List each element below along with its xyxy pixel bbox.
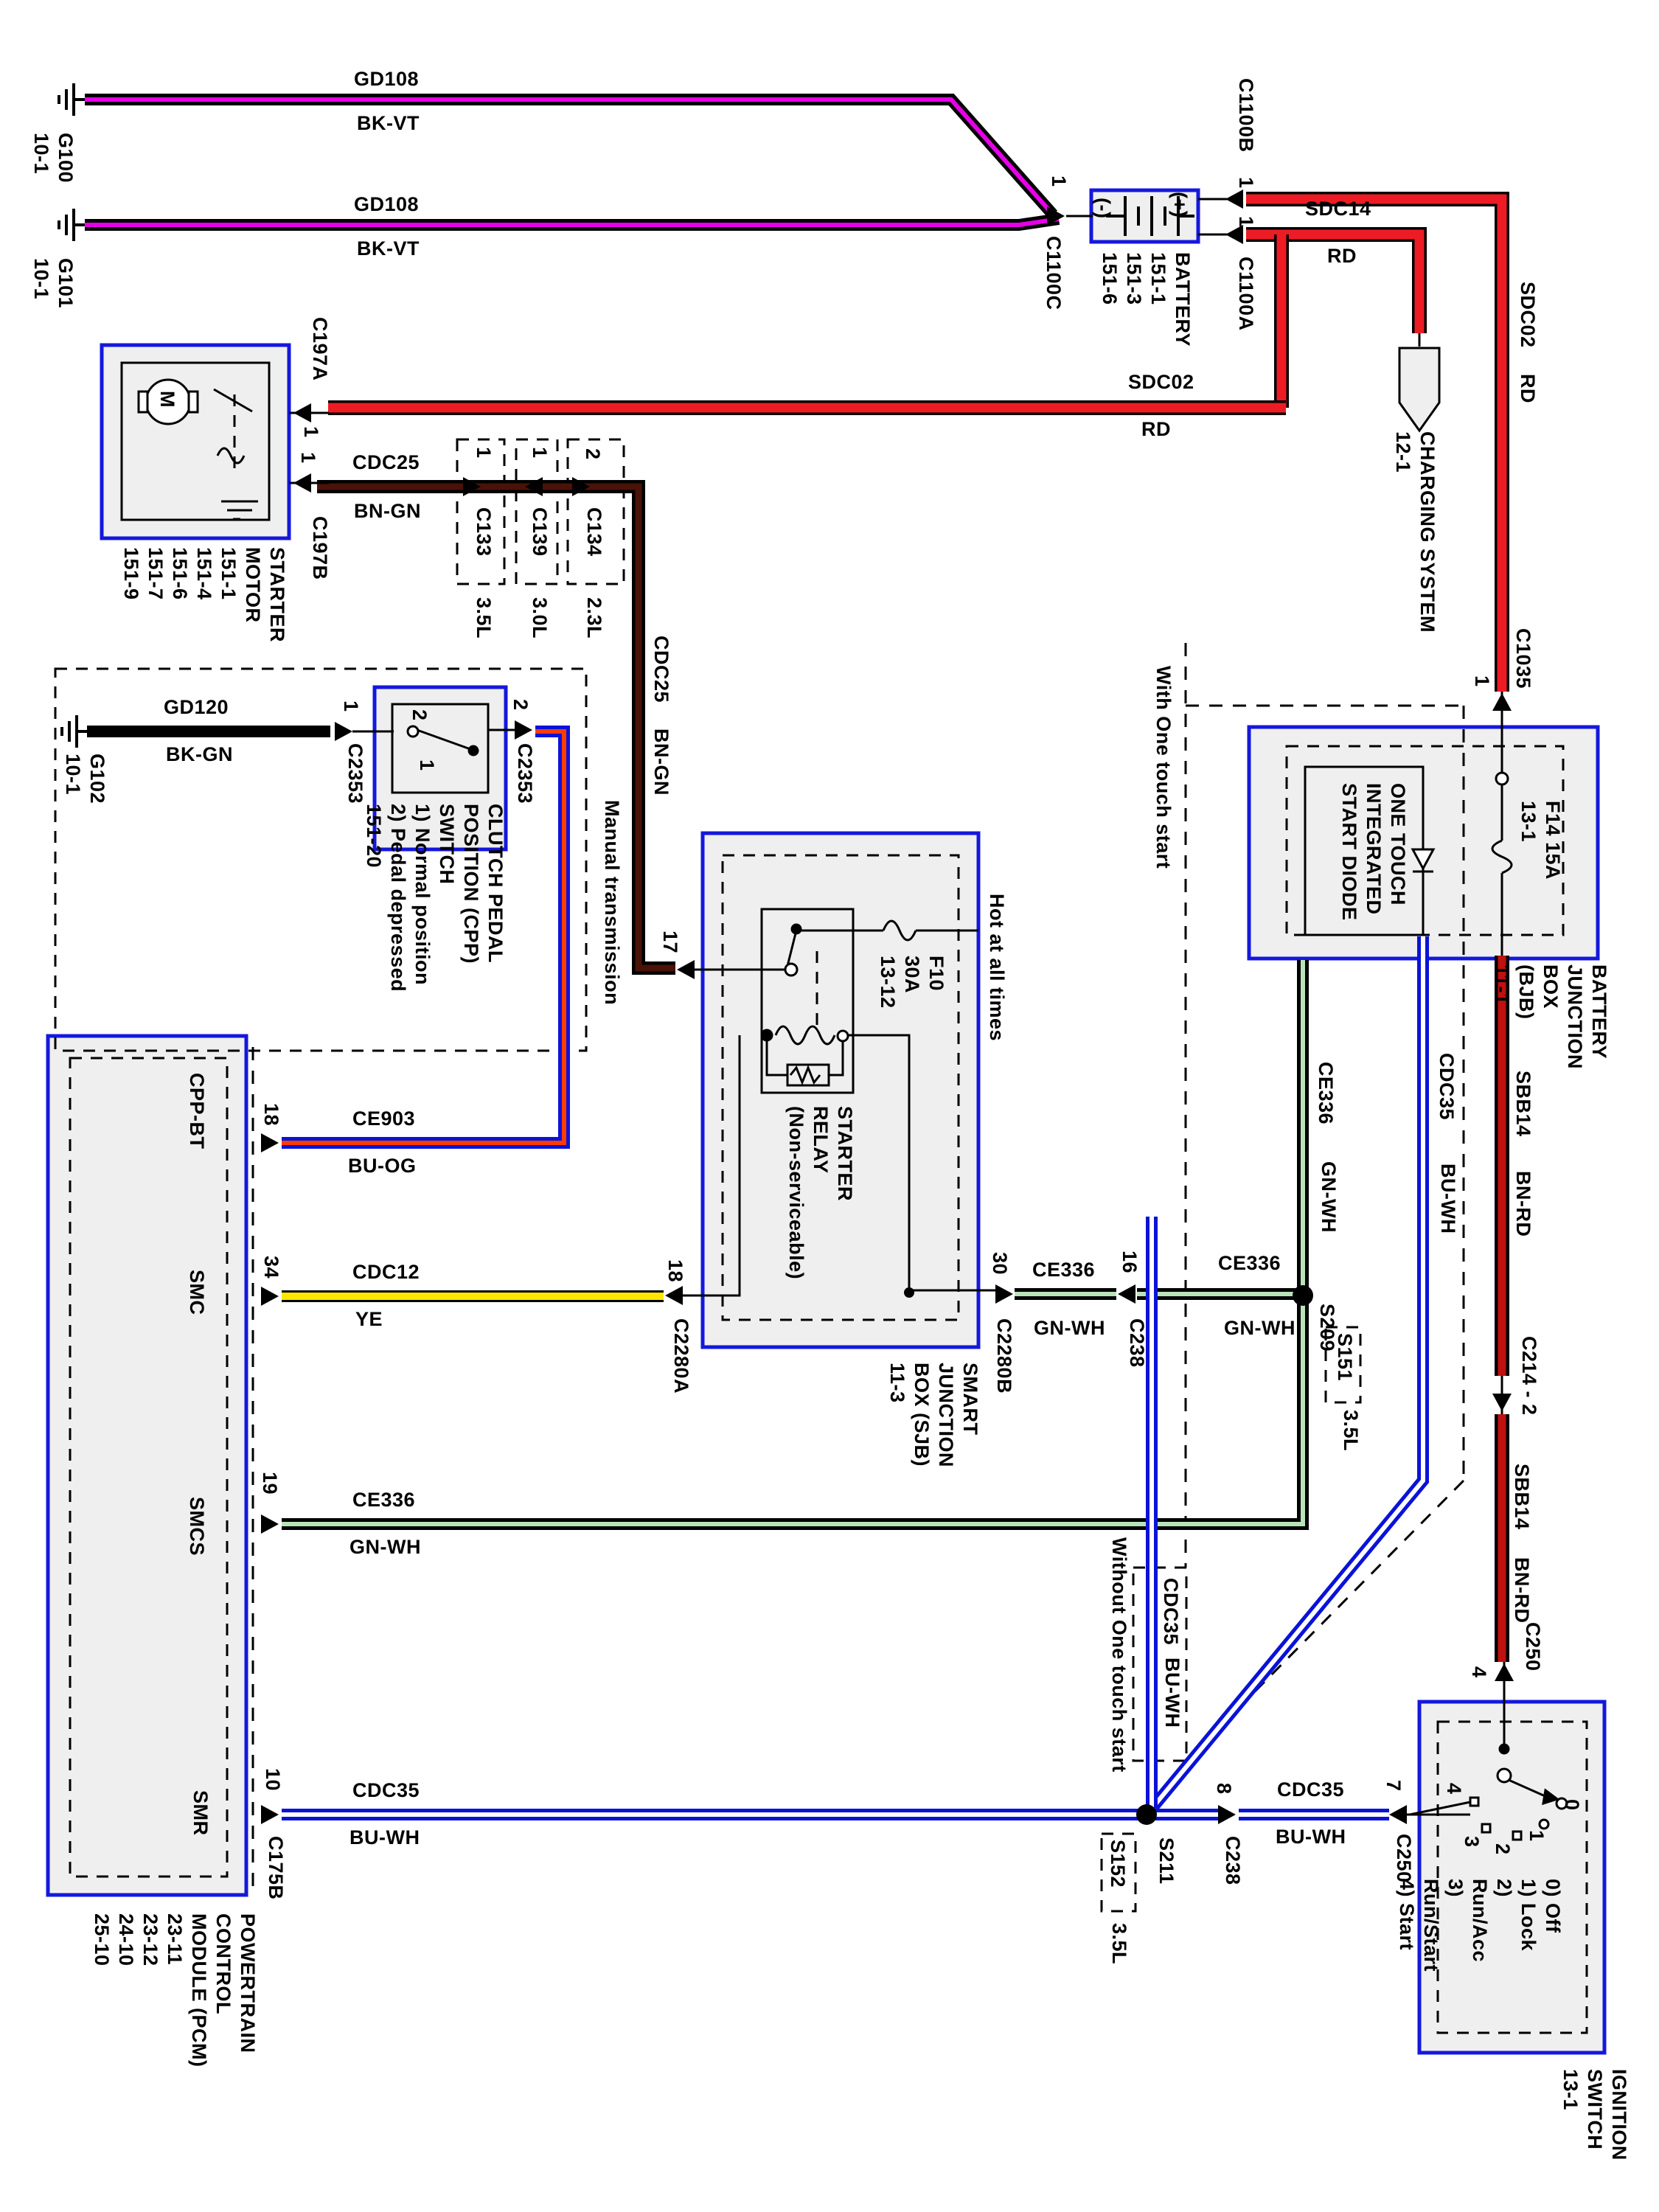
wire-color-label: RD (1141, 418, 1171, 441)
relay-corner-dot (904, 1287, 914, 1298)
connector-label: C1035 (1511, 628, 1535, 689)
wire-color-label: GN-WH (1224, 1317, 1295, 1340)
connector-arrow-sjb18 (665, 1286, 683, 1305)
splice-label: S152 (1105, 1840, 1130, 1888)
wire-label: CDC35 (1277, 1778, 1344, 1801)
pin-number: 1 (471, 447, 495, 459)
pin-number: 19 (257, 1472, 282, 1495)
engine-label: 3.5L (1107, 1923, 1131, 1964)
connector-arrow-pcm34 (261, 1287, 279, 1306)
ignition-pos-3: 3 (1459, 1836, 1484, 1848)
engine-label: 3.5L (1338, 1410, 1363, 1451)
pin-number: 1 (414, 759, 439, 771)
pcm-pin-label: SMCS (184, 1497, 209, 1556)
connector-label: C214 - 2 (1517, 1336, 1541, 1416)
pin-number: 1 (527, 447, 552, 459)
ignition-legend: 0) Off 1) Lock 2) Run/Acc 3) Run/Start 4… (1394, 1879, 1565, 1973)
splice-s209 (1293, 1285, 1313, 1306)
connector-arrow-pin7 (1389, 1805, 1407, 1824)
pcm-pin-label: CPP-BT (184, 1073, 209, 1150)
pin-number: 16 (1117, 1251, 1141, 1273)
connector-label: C197A (307, 317, 332, 381)
connector-label: C1100A (1234, 257, 1258, 331)
note-manual-transmission: Manual transmission (599, 800, 624, 1005)
connector-label: C238 (1124, 1318, 1149, 1368)
splice-s211 (1136, 1804, 1157, 1825)
engine-label: 2.3L (582, 597, 606, 639)
connector-arrow-c197a (293, 403, 311, 422)
bjb-label: BATTERY JUNCTION BOX (BJB) 11-1 (1489, 964, 1611, 1069)
wire-color-label: BK-VT (357, 237, 420, 260)
connector-label: C1100C (1041, 236, 1065, 310)
wire-color-label-vertical: BN-RD (1509, 1557, 1534, 1624)
wire-label-vertical: CDC25 (649, 636, 673, 703)
starter-relay-label: STARTER RELAY (Non-serviceable) (784, 1106, 857, 1279)
sjb-label: SMART JUNCTION BOX (SJB) 11-3 (885, 1363, 982, 1467)
pin-number: 2 (580, 448, 605, 460)
splice-label: S211 (1154, 1837, 1178, 1885)
wire-label: CDC25 (352, 451, 420, 474)
pin-number: 10 (260, 1768, 285, 1791)
connector-arrow-c1035 (1492, 693, 1512, 711)
connector-arrow-c139 (525, 477, 543, 496)
connector-label: C175B (263, 1836, 288, 1900)
ignition-switch-box (1419, 1702, 1604, 2053)
connector-label: C2353 (343, 743, 367, 804)
wire-color-label: GN-WH (1034, 1317, 1105, 1340)
pin-number: 1 (299, 426, 323, 438)
wire-label: GD108 (354, 68, 419, 91)
wire-label-vertical: CDC35 (1434, 1053, 1458, 1120)
wire-color-label: BU-OG (348, 1155, 417, 1178)
wire-label: GD108 (354, 193, 419, 216)
wire-color-label-vertical: RD (1515, 374, 1540, 403)
wire-color-label: BN-GN (354, 500, 421, 523)
wire-label: CDC12 (352, 1261, 420, 1284)
note-hot-at-all-times: Hot at all times (984, 894, 1009, 1041)
wiring-diagram-canvas: GD108 BK-VT GD108 BK-VT GD120 BK-GN CDC2… (0, 0, 1659, 2212)
connector-arrow-c2353l (335, 722, 352, 741)
wire-color-label-vertical: BN-RD (1511, 1171, 1535, 1237)
wire-label: CE903 (352, 1107, 415, 1130)
wire-color-label-vertical: BN-GN (649, 728, 673, 796)
battery-minus-label: (-) (1091, 198, 1115, 218)
connector-label: C238 (1220, 1836, 1245, 1885)
connector-arrow-c2353r (515, 720, 532, 740)
pin-number: 17 (658, 931, 682, 953)
pin-number: 1 (1046, 175, 1071, 187)
pin-number: 4 (1467, 1666, 1491, 1678)
splice-label: S151 (1332, 1333, 1357, 1381)
motor-m-label: M (155, 391, 179, 408)
pcm-box (48, 1036, 246, 1895)
engine-label: 3.5L (471, 597, 495, 639)
wire-color-label: GN-WH (349, 1536, 421, 1559)
wire-label-vertical: CE336 (1313, 1062, 1338, 1124)
fuse-f14-label: F14 15A 13-1 (1516, 801, 1565, 880)
connector-label: C134 (582, 507, 606, 557)
pin-number: 1 (1470, 675, 1494, 687)
connector-label: C2353 (512, 743, 537, 804)
connector-arrow-pin8 (1218, 1805, 1236, 1824)
engine-label: 3.0L (527, 597, 552, 639)
note-with-one-touch: With One touch start (1151, 666, 1175, 869)
wire-label: CE336 (1032, 1259, 1095, 1281)
connector-arrow-c133 (463, 477, 481, 496)
wire-label: SDC02 (1128, 371, 1194, 394)
connector-arrow-c197b (293, 473, 311, 493)
ground-label-g101: G101 10-1 (29, 258, 77, 308)
ground-label-g100: G100 10-1 (29, 133, 77, 183)
pin-number: 8 (1211, 1783, 1236, 1795)
charging-system-label: CHARGING SYSTEM 12-1 (1391, 431, 1439, 633)
pin-number: 2 (407, 709, 431, 721)
pin-number: 30 (987, 1252, 1012, 1275)
connector-arrow-c1100c (1047, 206, 1065, 226)
battery-plus-label: (+) (1167, 192, 1192, 218)
wire-label: CDC35 (352, 1779, 420, 1802)
ground-label-g102: G102 10-1 (60, 754, 109, 804)
pin-number: 1 (1234, 177, 1258, 189)
connector-arrow-pcm19 (261, 1514, 279, 1534)
wire-color-label: YE (355, 1308, 383, 1331)
pin-number: 18 (259, 1103, 283, 1126)
starter-motor-label: STARTER MOTOR 151-1 151-4 151-6 151-7 15… (119, 547, 289, 642)
pcm-label: POWERTRAIN CONTROL MODULE (PCM) 23-11 23… (89, 1913, 260, 2067)
diode-label: ONE TOUCH INTEGRATED START DIODE (1337, 783, 1410, 921)
connector-label: C139 (527, 507, 552, 557)
pin-number: 1 (1234, 216, 1258, 228)
connector-arrow-pin17 (677, 960, 695, 979)
battery-label: BATTERY 151-1 151-3 151-6 (1097, 252, 1194, 347)
connector-label: C250 (1391, 1834, 1416, 1883)
wire-color-label-vertical: GN-WH (1316, 1161, 1340, 1233)
connector-arrow-c1100b (1225, 189, 1243, 209)
ignition-pos-4: 4 (1441, 1783, 1466, 1795)
wire-color-label: BU-WH (349, 1826, 420, 1849)
charging-system-connector (1399, 348, 1439, 431)
wire-color-label: BU-WH (1276, 1826, 1346, 1848)
connector-arrow-c214 (1492, 1394, 1512, 1411)
ignition-switch-label: IGNITION SWITCH 13-1 (1558, 2069, 1631, 2160)
wire-label-vertical: SBB14 (1511, 1071, 1535, 1137)
connector-arrow-pin30 (995, 1284, 1013, 1304)
wire-label: CE336 (1218, 1252, 1281, 1275)
pin-number: 7 (1381, 1780, 1405, 1792)
wire-label-vertical: CDC35 (1158, 1578, 1183, 1645)
pcm-pin-label: SMR (188, 1790, 212, 1836)
connector-arrow-pcm18 (261, 1133, 279, 1152)
connector-label: C133 (471, 507, 495, 557)
connector-arrow-pin16 (1118, 1284, 1135, 1304)
connector-label: C1100B (1234, 78, 1258, 153)
connector-label: C2280B (992, 1318, 1016, 1394)
wire-color-label: BK-VT (357, 112, 420, 135)
pin-number: 2 (508, 699, 532, 711)
wire-color-label: BK-GN (166, 743, 233, 766)
ground-icon (59, 83, 87, 748)
wire-color-label: RD (1327, 245, 1357, 268)
pcm-pin-label: SMC (184, 1270, 209, 1315)
connector-label: C250 (1520, 1622, 1545, 1672)
wire-label: GD120 (164, 696, 229, 719)
pin-number: 1 (338, 700, 363, 712)
connector-arrow-c1100a (1225, 225, 1243, 244)
pin-number: 34 (259, 1256, 283, 1279)
connector-arrow-c250top (1495, 1663, 1514, 1681)
wire-label-vertical: SBB14 (1509, 1464, 1534, 1530)
ignition-pos-1: 1 (1524, 1830, 1548, 1842)
pin-number: 1 (296, 452, 320, 464)
wire-gd108 (85, 100, 1059, 225)
connector-label: C197B (307, 516, 332, 580)
fuse-f10-label: F10 30A 13-12 (875, 956, 948, 1009)
wire-color-label-vertical: BU-WH (1160, 1658, 1184, 1728)
wire-label: SDC14 (1305, 198, 1371, 220)
connector-label: C2280A (669, 1318, 693, 1394)
connector-arrow-c134 (572, 477, 590, 496)
cpp-switch-label: CLUTCH PEDAL POSITION (CPP) SWITCH 1) No… (361, 804, 507, 992)
wire-label: CE336 (352, 1489, 415, 1512)
starter-motor-box (102, 345, 289, 538)
pin-number: 18 (663, 1259, 687, 1282)
ignition-pos-0: 0 (1559, 1799, 1584, 1811)
connector-arrow-pcm10 (261, 1805, 279, 1824)
ignition-pos-2: 2 (1490, 1843, 1514, 1855)
wire-color-label-vertical: BU-WH (1436, 1164, 1460, 1234)
wire-label-vertical: SDC02 (1515, 282, 1540, 348)
note-without-one-touch: Without One touch start (1107, 1537, 1131, 1773)
